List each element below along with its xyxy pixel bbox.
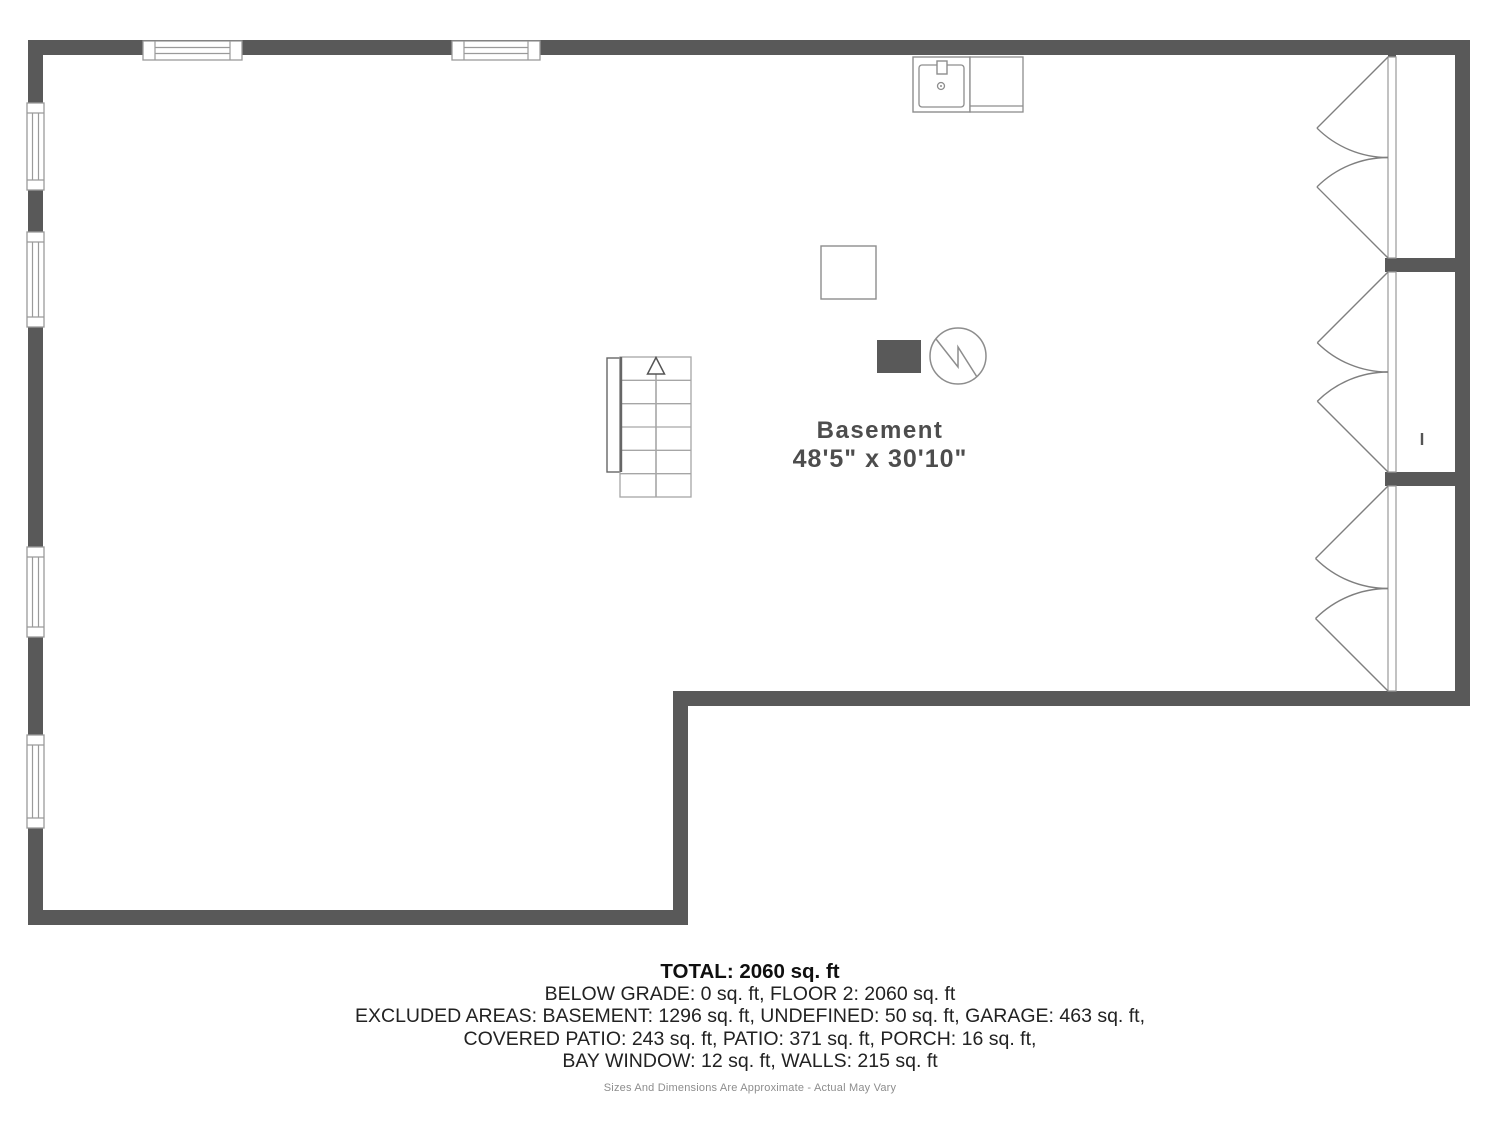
furnace-icon (821, 246, 876, 299)
sink-icon (913, 57, 970, 112)
closet-door-strip (1388, 57, 1396, 258)
closet-door-strip (1388, 272, 1396, 472)
stair-rail (607, 358, 620, 472)
wall-segment (28, 40, 1470, 55)
wall-segment (673, 691, 1470, 706)
window-top-icon (452, 41, 540, 60)
faucet (937, 61, 947, 74)
area-summary: TOTAL: 2060 sq. ft BELOW GRADE: 0 sq. ft… (0, 961, 1500, 1094)
wall-segment (673, 691, 688, 925)
closet-doors-group (1316, 57, 1396, 691)
water-heater-icon (930, 328, 986, 384)
counter-icon (970, 57, 1023, 112)
stairs-icon (607, 357, 691, 497)
area-line-2: EXCLUDED AREAS: BASEMENT: 1296 sq. ft, U… (0, 1005, 1500, 1027)
window-top-icon (143, 41, 242, 60)
wall-segment (1455, 40, 1470, 706)
window-left-icon (27, 103, 44, 190)
area-line-3: COVERED PATIO: 243 sq. ft, PATIO: 371 sq… (0, 1028, 1500, 1050)
room-dims: 48'5" x 30'10" (793, 445, 968, 473)
wall-segment (28, 910, 688, 925)
electrical-panel-icon (877, 340, 921, 373)
double-door-icon (1317, 57, 1388, 258)
double-door-icon (1317, 272, 1388, 472)
total-area-text: TOTAL: 2060 sq. ft (0, 961, 1500, 983)
room-name: Basement (817, 417, 944, 444)
window-left-icon (27, 547, 44, 637)
floorplan-drawing: Basement 48'5" x 30'10" (0, 0, 1500, 940)
area-line-1: BELOW GRADE: 0 sq. ft, FLOOR 2: 2060 sq.… (0, 983, 1500, 1005)
wall-segment (1385, 258, 1455, 272)
closet-door-strip (1388, 486, 1396, 691)
wall-segment (1385, 472, 1455, 486)
area-line-4: BAY WINDOW: 12 sq. ft, WALLS: 215 sq. ft (0, 1050, 1500, 1072)
floorplan-page: Basement 48'5" x 30'10" TOTAL: 2060 sq. … (0, 0, 1500, 1125)
windows-group (27, 41, 540, 828)
walls-group (28, 40, 1470, 925)
disclaimer-text: Sizes And Dimensions Are Approximate - A… (0, 1082, 1500, 1094)
double-door-icon (1316, 486, 1388, 691)
window-left-icon (27, 735, 44, 828)
window-left-icon (27, 232, 44, 327)
